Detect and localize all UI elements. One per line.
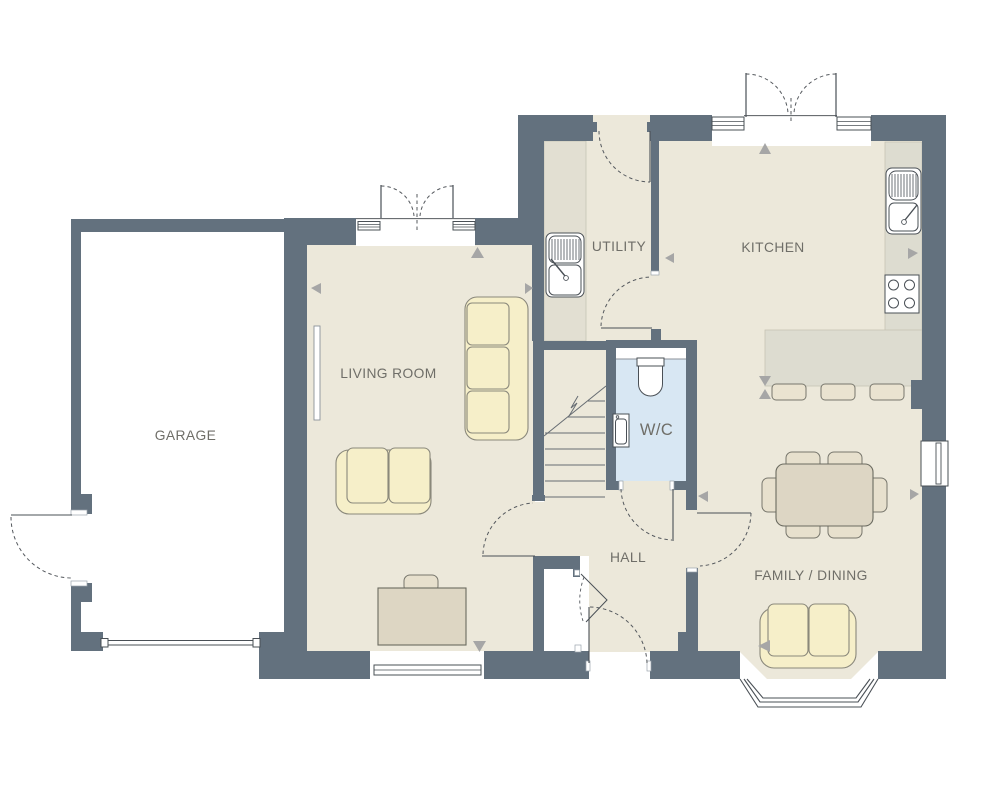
svg-text:LIVING ROOM: LIVING ROOM — [340, 366, 436, 381]
svg-text:UTILITY: UTILITY — [592, 239, 646, 254]
svg-text:HALL: HALL — [610, 550, 646, 565]
svg-text:GARAGE: GARAGE — [155, 428, 216, 443]
svg-text:W/C: W/C — [640, 421, 673, 439]
svg-text:FAMILY / DINING: FAMILY / DINING — [754, 568, 868, 583]
svg-text:KITCHEN: KITCHEN — [741, 240, 804, 255]
